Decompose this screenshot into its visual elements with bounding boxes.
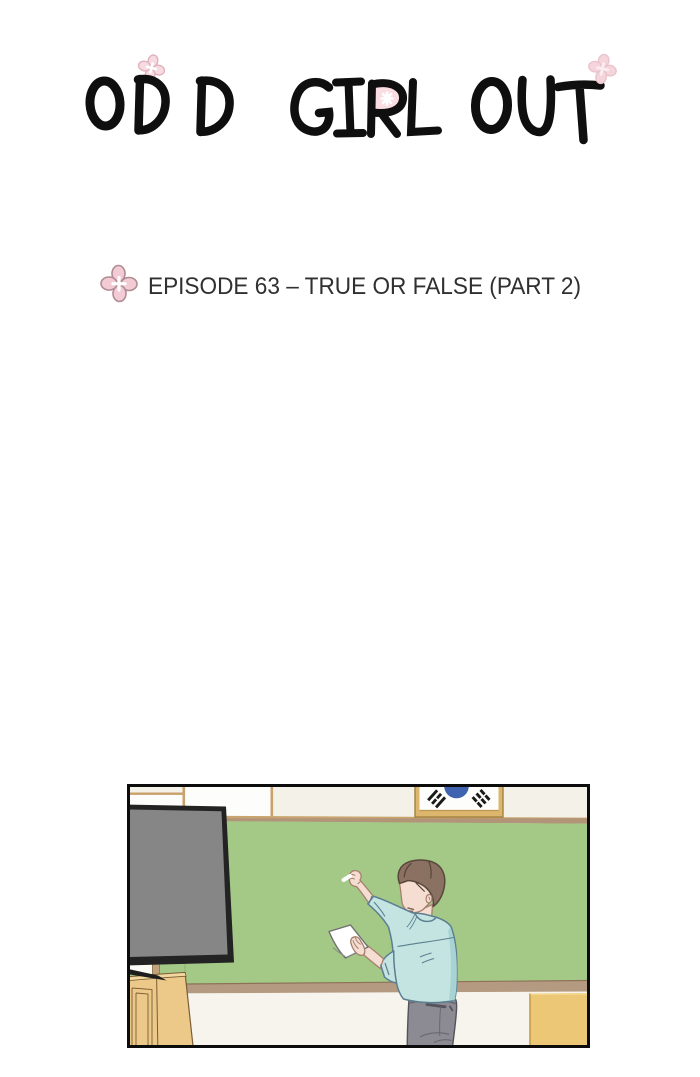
svg-text:EPISODE 63 – TRUE OR FALSE (PA: EPISODE 63 – TRUE OR FALSE (PART 2) (148, 273, 581, 300)
